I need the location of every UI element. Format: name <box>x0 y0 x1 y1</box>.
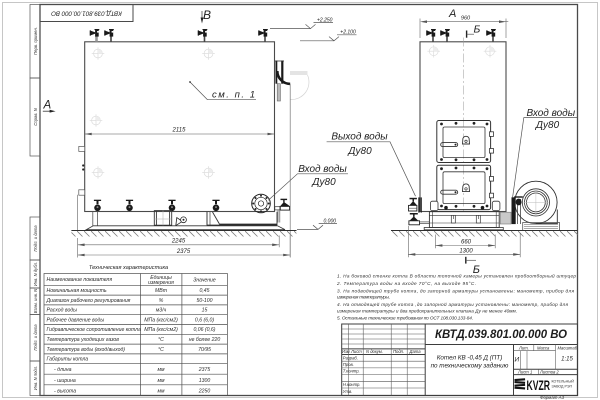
svg-text:Габариты котла: Габариты котла <box>47 357 89 363</box>
svg-text:Разраб.: Разраб. <box>343 355 358 360</box>
svg-text:Б: Б <box>474 24 481 36</box>
svg-text:Ду80: Ду80 <box>535 120 560 131</box>
svg-text:2375: 2375 <box>198 367 211 373</box>
svg-text:мм: мм <box>157 367 165 373</box>
svg-text:- высота: - высота <box>54 388 76 394</box>
svg-text:5. Остальные технические треб: 5. Остальные технические требования по О… <box>337 316 473 321</box>
svg-text:Температура воды (вход/выход): Температура воды (вход/выход) <box>47 347 126 353</box>
svg-text:ЗАВОД РЭП: ЗАВОД РЭП <box>552 385 573 389</box>
svg-text:%: % <box>159 298 164 304</box>
svg-text:Инв. N дубл.: Инв. N дубл. <box>33 262 38 286</box>
svg-text:МПа (кгс/см2): МПа (кгс/см2) <box>144 317 178 323</box>
svg-text:Изм: Изм <box>342 349 350 354</box>
svg-text:Температура уходящих газов: Температура уходящих газов <box>47 337 120 343</box>
svg-text:Листов 2: Листов 2 <box>539 369 559 374</box>
svg-text:2115: 2115 <box>172 128 187 134</box>
svg-text:Масштаб: Масштаб <box>558 345 578 350</box>
svg-text:2245: 2245 <box>171 239 186 245</box>
svg-text:Т.контр.: Т.контр. <box>343 369 360 374</box>
svg-text:2375: 2375 <box>176 249 191 255</box>
svg-text:измерения: измерения <box>148 280 174 286</box>
svg-text:Котел КВ -0,45 Д (ПТ): Котел КВ -0,45 Д (ПТ) <box>437 355 503 362</box>
svg-text:МВт: МВт <box>155 288 168 294</box>
svg-text:Ду80: Ду80 <box>347 146 372 157</box>
svg-text:1:15: 1:15 <box>561 357 573 363</box>
svg-text:Утв.: Утв. <box>343 389 353 394</box>
svg-text:1300: 1300 <box>199 378 211 384</box>
svg-text:Подп. и дата: Подп. и дата <box>33 225 38 252</box>
svg-text:+2.100: +2.100 <box>340 30 356 36</box>
svg-text:0.000: 0.000 <box>324 218 337 224</box>
svg-text:Номинальная мощность: Номинальная мощность <box>47 288 107 294</box>
svg-text:Формат А3: Формат А3 <box>540 395 565 400</box>
svg-text:Выход воды: Выход воды <box>331 132 388 143</box>
svg-text:Гидравлическое сопротивление к: Гидравлическое сопротивление котла <box>47 327 142 333</box>
svg-text:0,6 (6,0): 0,6 (6,0) <box>195 317 214 323</box>
svg-text:Справ. N: Справ. N <box>33 107 38 125</box>
svg-text:измерения температуры и два пр: измерения температуры и два предохраните… <box>337 309 517 314</box>
svg-text:Расход воды: Расход воды <box>47 308 78 314</box>
svg-text:Диапазон рабочего регулировани: Диапазон рабочего регулирования <box>46 298 131 304</box>
svg-text:КВТД.039.801.00.000 ВО: КВТД.039.801.00.000 ВО <box>51 9 122 16</box>
svg-text:0,45: 0,45 <box>199 288 209 294</box>
svg-text:Значение: Значение <box>193 278 216 284</box>
svg-text:1300: 1300 <box>459 248 473 254</box>
svg-text:В: В <box>203 8 211 22</box>
svg-text:Лист 1: Лист 1 <box>517 369 532 374</box>
svg-text:0,06 (0,6): 0,06 (0,6) <box>193 327 215 333</box>
svg-text:3. На подводящей трубе котла,: 3. На подводящей трубе котла, до запорно… <box>337 288 574 294</box>
svg-text:А: А <box>448 8 456 20</box>
svg-text:мм: мм <box>157 378 165 384</box>
svg-text:измерения температуры.: измерения температуры. <box>337 295 390 300</box>
svg-text:Перв. примен.: Перв. примен. <box>33 27 38 55</box>
svg-text:мм: мм <box>157 388 165 394</box>
svg-text:Вход воды: Вход воды <box>298 164 347 175</box>
svg-text:Масса: Масса <box>537 345 550 350</box>
svg-text:И: И <box>515 357 520 364</box>
svg-text:960: 960 <box>461 15 471 21</box>
svg-text:- ширина: - ширина <box>54 378 76 384</box>
svg-text:70/95: 70/95 <box>198 347 211 353</box>
svg-text:м3/ч: м3/ч <box>156 308 167 314</box>
svg-text:1. На боковой стенке котла В: 1. На боковой стенке котла В области топ… <box>337 273 576 279</box>
svg-text:2250: 2250 <box>198 388 211 394</box>
svg-text:Техническая характеристика: Техническая характеристика <box>89 265 168 271</box>
svg-text:Взам. инв. N: Взам. инв. N <box>33 288 38 313</box>
svg-text:А: А <box>43 100 52 112</box>
svg-text:50-100: 50-100 <box>196 298 212 304</box>
svg-text:N докум.: N докум. <box>366 349 383 354</box>
svg-text:Подп.: Подп. <box>393 349 404 354</box>
svg-text:по техническому заданию: по техническому заданию <box>431 362 509 370</box>
svg-text:Дата: Дата <box>409 349 422 354</box>
svg-text:Пров.: Пров. <box>343 362 354 367</box>
svg-text:4. На отводящей трубе котла ,: 4. На отводящей трубе котла ,до запорной… <box>337 301 568 307</box>
svg-text:КВТД.039.801.00.000 ВО: КВТД.039.801.00.000 ВО <box>435 329 567 341</box>
svg-text:+2.250: +2.250 <box>317 17 333 23</box>
svg-text:не более 220: не более 220 <box>189 337 221 343</box>
svg-text:15: 15 <box>202 308 208 314</box>
svg-text:Наименование показателя: Наименование показателя <box>47 277 113 283</box>
svg-text:Лист: Лист <box>350 349 362 354</box>
svg-text:Ду80: Ду80 <box>311 177 336 188</box>
svg-text:- длина: - длина <box>54 367 72 373</box>
svg-text:°С: °С <box>158 347 164 353</box>
svg-text:Лит.: Лит. <box>518 345 529 350</box>
svg-text:МПа (кгс/см2): МПа (кгс/см2) <box>144 327 178 333</box>
svg-text:Вход воды: Вход воды <box>527 108 576 119</box>
svg-text:2. Температура воды на входе: 2. Температура воды на входе 70°С, на вы… <box>336 281 476 286</box>
svg-text:660: 660 <box>461 239 472 245</box>
svg-text:KVZR: KVZR <box>527 378 551 393</box>
svg-text:Н.контр.: Н.контр. <box>343 382 361 387</box>
svg-text:Подп. и дата: Подп. и дата <box>33 324 38 351</box>
svg-text:Рабочее давление воды: Рабочее давление воды <box>47 317 105 323</box>
svg-text:°С: °С <box>158 337 164 343</box>
svg-text:КОТЕЛЬНЫЙ: КОТЕЛЬНЫЙ <box>552 380 575 384</box>
svg-text:Инв. N подл.: Инв. N подл. <box>33 366 38 390</box>
